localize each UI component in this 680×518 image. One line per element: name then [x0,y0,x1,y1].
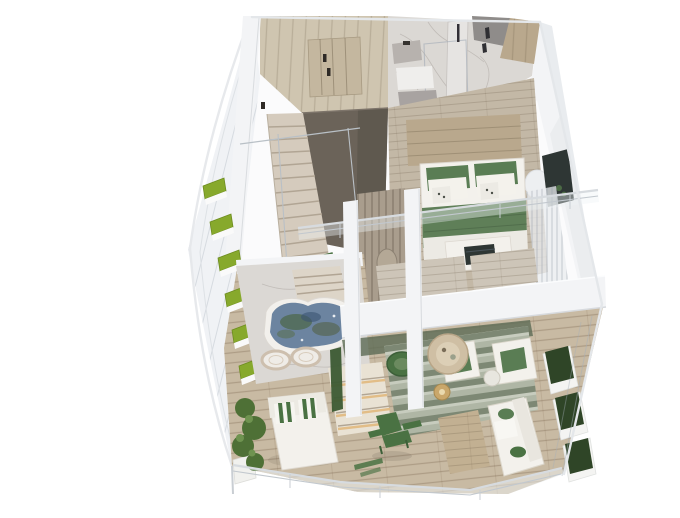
sofa-pillow [494,418,518,440]
bath-cabinet [396,66,434,90]
side-stool [484,370,500,386]
shower-column [457,24,460,42]
rattan-lamp [434,384,450,400]
pillow-pattern [432,186,451,204]
headboard-wall [406,114,522,166]
green-bolster [510,447,526,458]
green-bolster [498,409,514,420]
closet-handle [327,68,331,76]
closet-handle [323,54,327,62]
door-handle [261,102,265,109]
closet-doors [308,37,362,97]
apartment-3d-render [40,16,680,502]
coffee-table [428,334,468,374]
plant-glimpse [556,185,562,191]
daybed-pillow [274,402,296,424]
pillow-pattern [480,182,499,200]
faucet [403,41,410,45]
render-canvas [40,16,680,502]
